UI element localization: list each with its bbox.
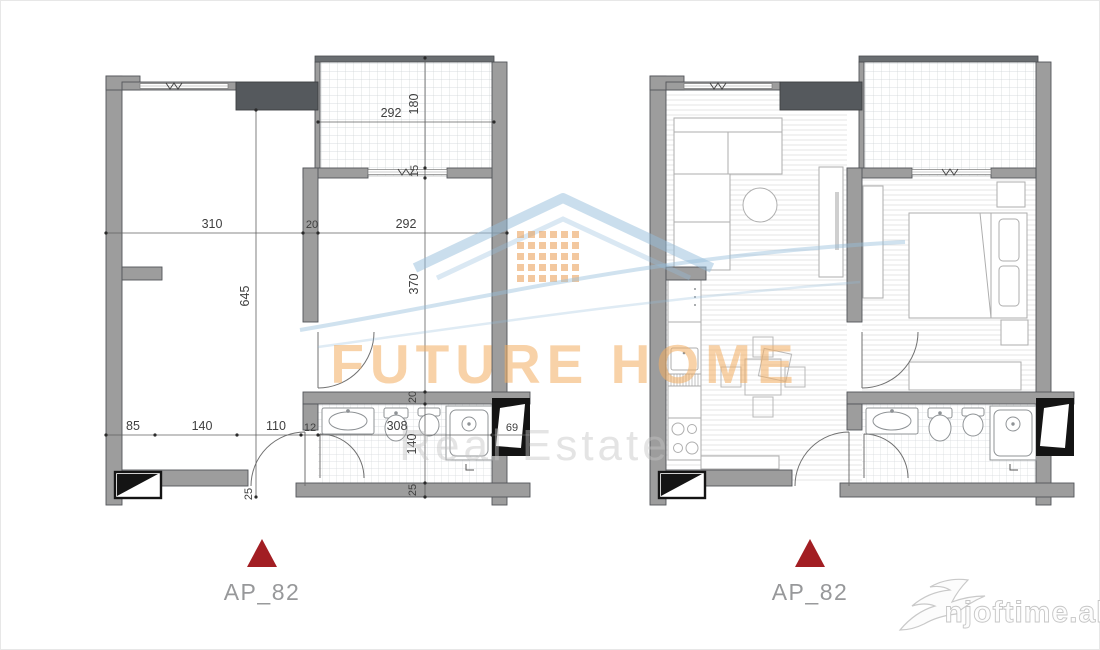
pillow (999, 219, 1019, 261)
floorplan-canvas: 292 180 15 310 20 292 645 370 85 140 110… (0, 0, 1100, 650)
dim-living-width: 310 (202, 217, 223, 231)
site-watermark: njoftime.al (900, 579, 1100, 630)
dim-seg-140: 140 (192, 419, 213, 433)
pillow (999, 266, 1019, 306)
coffee-table (743, 188, 777, 222)
balcony (862, 57, 1038, 176)
dresser (909, 362, 1021, 390)
dim-living-height: 645 (238, 286, 252, 307)
floorplan-right (650, 56, 1074, 505)
brand-tagline: Real Estate (399, 421, 670, 470)
nightstand (997, 182, 1025, 207)
stove (668, 418, 701, 460)
dim-bedroom-height: 370 (407, 274, 421, 295)
dim-sill: 15 (409, 165, 421, 177)
apartment-label-left: AP_82 (224, 579, 301, 605)
floorplan-image: 292 180 15 310 20 292 645 370 85 140 110… (0, 0, 1100, 650)
dim-bottom-wall: 25 (407, 484, 419, 496)
dim-balcony-height: 180 (407, 94, 421, 115)
brand-name: FUTURE HOME (330, 333, 799, 395)
tv-stand (819, 167, 843, 277)
dim-door-offset: 25 (243, 488, 255, 500)
apartment-markers: AP_82 AP_82 (224, 539, 849, 605)
apartment-marker-right (795, 539, 825, 567)
dim-seg-110: 110 (266, 419, 286, 433)
site-name: njoftime.al (944, 596, 1100, 629)
logo-windows-icon (517, 228, 579, 284)
apartment-marker-left (247, 539, 277, 567)
tv (835, 192, 839, 250)
dim-seg-12: 12 (304, 422, 316, 434)
dim-mid-wall: 20 (306, 219, 318, 231)
dim-balcony-width: 292 (381, 106, 402, 120)
apartment-label-right: AP_82 (772, 579, 849, 605)
dim-seg-85: 85 (126, 419, 140, 433)
balcony (318, 57, 494, 176)
nightstand (1001, 320, 1028, 345)
dim-bedroom-width: 292 (396, 217, 417, 231)
kitchen-cabinet (701, 456, 779, 469)
